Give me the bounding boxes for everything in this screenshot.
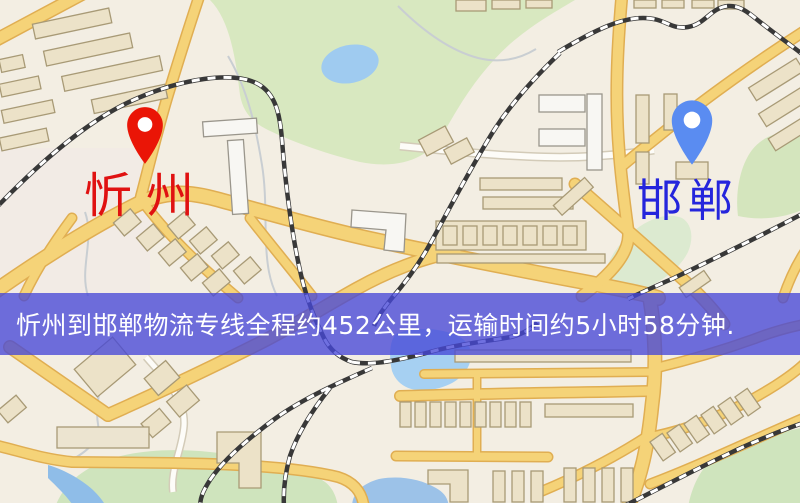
origin-pin-icon[interactable] (124, 103, 166, 168)
origin-label: 忻州 (84, 172, 208, 220)
destination-label: 邯郸 (637, 178, 739, 223)
map-screenshot: 忻州到邯郸物流专线全程约452公里，运输时间约5小时58分钟. 忻州 邯郸 (0, 0, 800, 503)
route-info-text: 忻州到邯郸物流专线全程约452公里，运输时间约5小时58分钟. (16, 306, 735, 342)
route-info-banner: 忻州到邯郸物流专线全程约452公里，运输时间约5小时58分钟. (0, 293, 800, 355)
destination-pin-icon[interactable] (667, 98, 717, 167)
map-canvas[interactable] (0, 0, 800, 503)
